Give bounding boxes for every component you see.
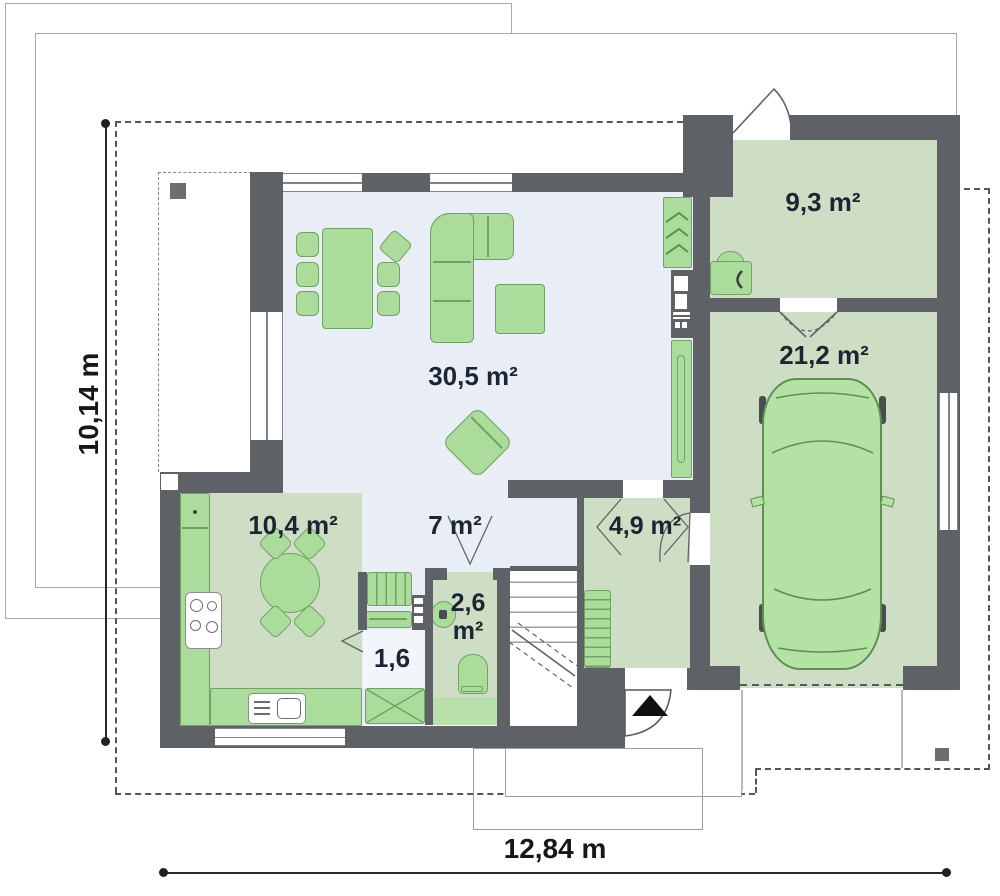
dimension-width-label: 12,84 m (465, 833, 645, 865)
wall (512, 173, 683, 192)
wall (687, 668, 710, 690)
dining-chair (377, 291, 400, 316)
wall (693, 197, 710, 480)
car-body (762, 378, 882, 670)
tall-cabinet (671, 340, 692, 478)
marker-square (170, 183, 186, 199)
wall (577, 668, 625, 748)
wall (508, 480, 623, 498)
driveway-edge (741, 690, 743, 790)
dimension-dot (101, 737, 110, 746)
wall (683, 115, 733, 197)
window (283, 173, 362, 192)
storage-cabinet-x (365, 688, 425, 724)
window (939, 393, 958, 530)
marker-square (935, 748, 949, 761)
window (250, 312, 283, 440)
dining-chair (296, 262, 319, 287)
upper-floor-outline (158, 172, 252, 472)
dimension-line-vertical (105, 123, 107, 741)
toilet (458, 654, 488, 694)
room-label-garage: 21,2 m² (744, 341, 904, 370)
room-label-pantry: 1,6 (352, 644, 432, 673)
driveway-edge (901, 690, 903, 768)
wall (690, 498, 710, 513)
wall (837, 298, 937, 312)
corner-sofa (430, 213, 474, 343)
coffee-table (495, 284, 545, 334)
exterior-steps (473, 748, 703, 830)
dining-table (322, 228, 373, 329)
wall (903, 666, 937, 690)
dining-chair (296, 232, 319, 257)
kitchen-table (260, 553, 320, 613)
window (161, 474, 178, 490)
wall (362, 173, 430, 192)
room-label-vestibule: 4,9 m² (585, 513, 705, 541)
dining-chair (377, 262, 400, 287)
pantry-shelf (367, 572, 412, 606)
wall (510, 566, 577, 571)
bench (710, 261, 752, 295)
chimney (671, 270, 693, 338)
hall-floor-strip (283, 480, 362, 493)
wall (690, 565, 710, 668)
plot-boundary-left (115, 121, 117, 793)
dimension-line-horizontal (163, 872, 946, 874)
wall (790, 115, 960, 140)
wall (577, 498, 584, 670)
room-label-kitchen: 10,4 m² (213, 511, 373, 540)
pantry-shelf (365, 611, 412, 628)
wall (703, 298, 780, 312)
window (215, 728, 345, 746)
floor-plan-canvas: 10,14 m 12,84 m (0, 0, 1000, 896)
wc-floor-strip (433, 697, 497, 725)
wall (250, 172, 283, 312)
plot-boundary-connector (755, 770, 757, 793)
plot-boundary-top (115, 121, 683, 123)
wardrobe (584, 590, 611, 668)
room-label-utility: 9,3 m² (743, 188, 903, 217)
kitchen-sink (248, 693, 306, 724)
room-label-hall: 7 m² (395, 511, 515, 540)
dimension-dot (942, 868, 951, 877)
cooktop (185, 592, 222, 649)
wall (160, 493, 180, 748)
room-label-wc: 2,6 m² (436, 590, 500, 645)
dimension-dot (101, 119, 110, 128)
dimension-height-label: 10,14 m (73, 324, 105, 484)
dimension-dot (159, 868, 168, 877)
window (430, 173, 512, 192)
wall (663, 480, 710, 498)
wall (250, 440, 283, 493)
shelf-unit (663, 197, 692, 268)
stair-treads (510, 568, 577, 646)
room-label-living: 30,5 m² (393, 362, 553, 391)
wall (358, 572, 367, 630)
dining-chair (296, 291, 319, 316)
wall (412, 595, 425, 630)
